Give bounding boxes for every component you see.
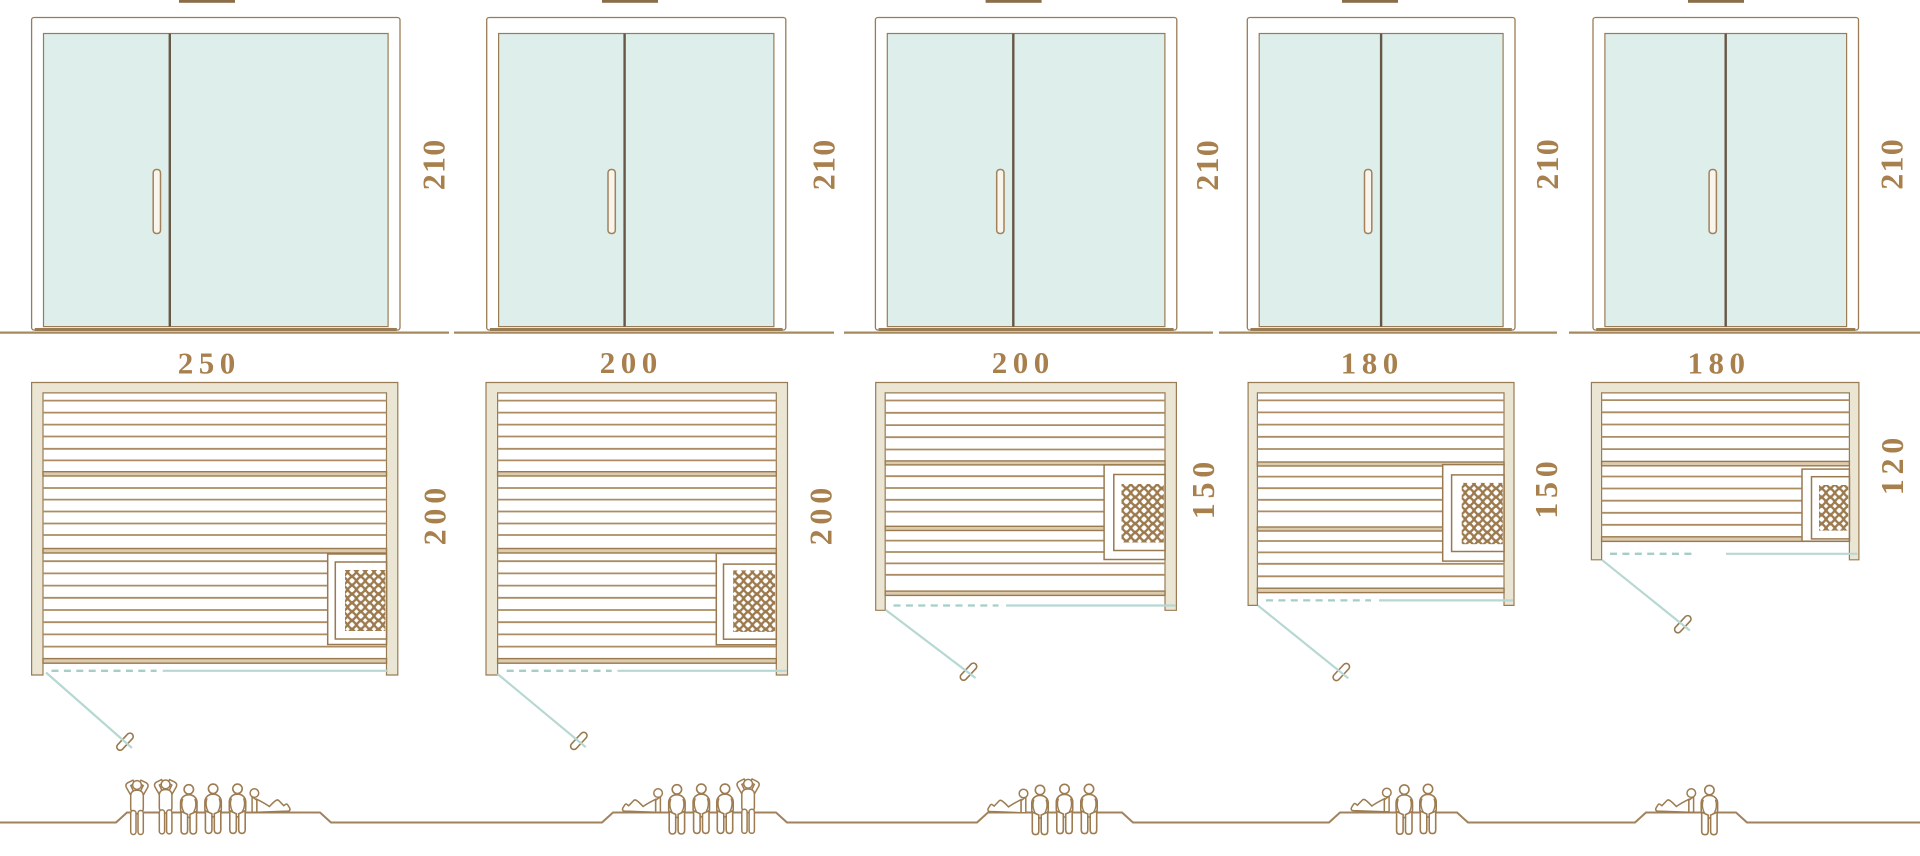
svg-text:180: 180 — [1688, 346, 1751, 381]
svg-text:210: 210 — [1529, 138, 1565, 190]
svg-text:150: 150 — [1528, 456, 1564, 518]
svg-text:210: 210 — [1189, 139, 1225, 191]
svg-text:120: 120 — [1874, 433, 1910, 495]
svg-text:250: 250 — [178, 346, 241, 381]
svg-text:150: 150 — [1185, 457, 1221, 519]
svg-text:200: 200 — [992, 345, 1055, 380]
svg-text:200: 200 — [803, 483, 839, 545]
svg-text:180: 180 — [1341, 346, 1404, 381]
svg-text:210: 210 — [1874, 138, 1910, 190]
svg-text:210: 210 — [416, 139, 452, 191]
svg-text:200: 200 — [417, 483, 453, 545]
svg-text:200: 200 — [600, 345, 663, 380]
svg-text:210: 210 — [806, 139, 842, 191]
